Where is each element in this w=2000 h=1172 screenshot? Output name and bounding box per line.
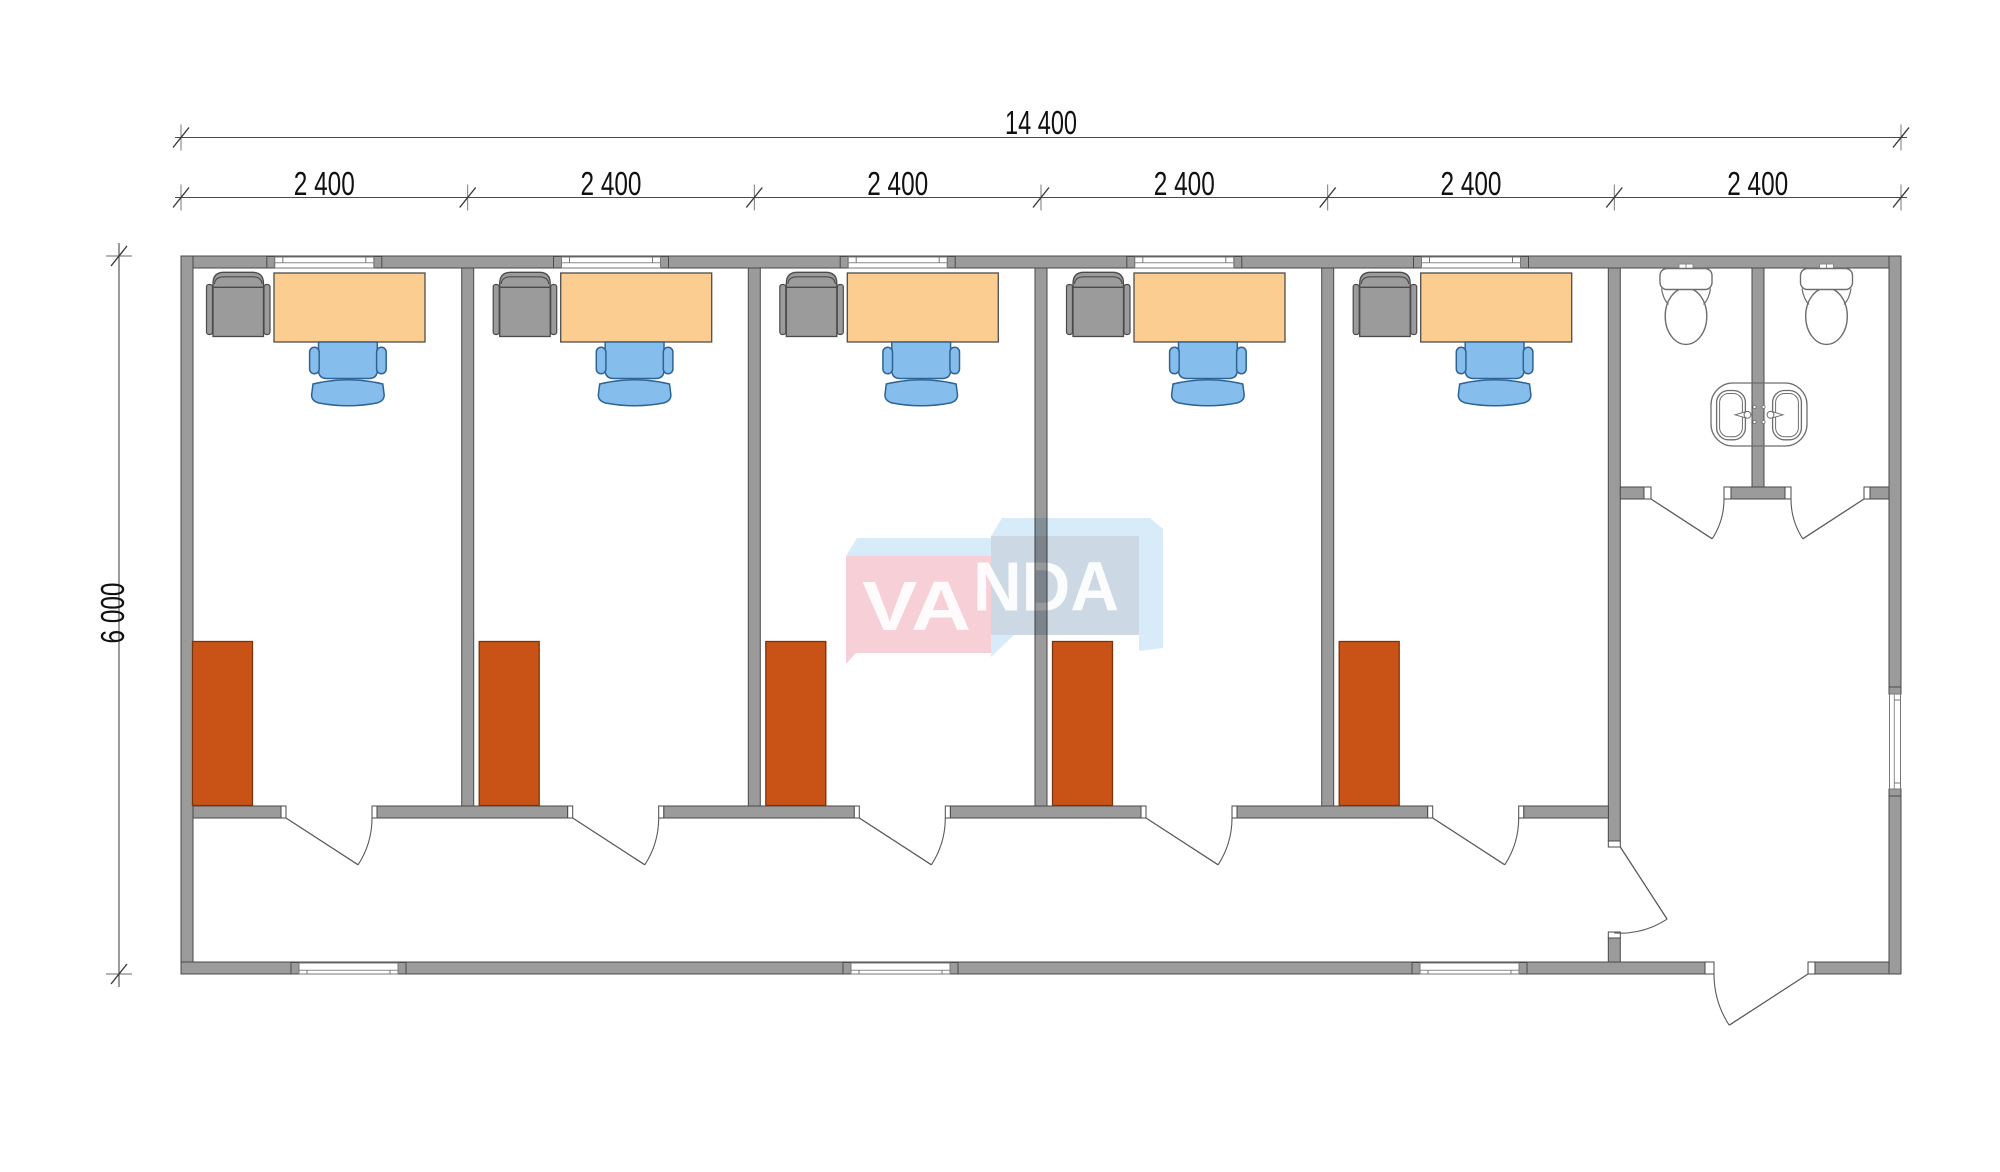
svg-text:NDA: NDA <box>973 548 1119 626</box>
svg-text:2 400: 2 400 <box>1727 165 1788 202</box>
svg-text:2 400: 2 400 <box>867 165 928 202</box>
svg-text:2 400: 2 400 <box>1441 165 1502 202</box>
svg-text:2 400: 2 400 <box>1154 165 1215 202</box>
svg-text:6 000: 6 000 <box>94 583 131 644</box>
svg-text:14 400: 14 400 <box>1005 104 1077 141</box>
svg-text:2 400: 2 400 <box>294 165 355 202</box>
svg-text:VA: VA <box>862 567 971 645</box>
svg-text:2 400: 2 400 <box>581 165 642 202</box>
